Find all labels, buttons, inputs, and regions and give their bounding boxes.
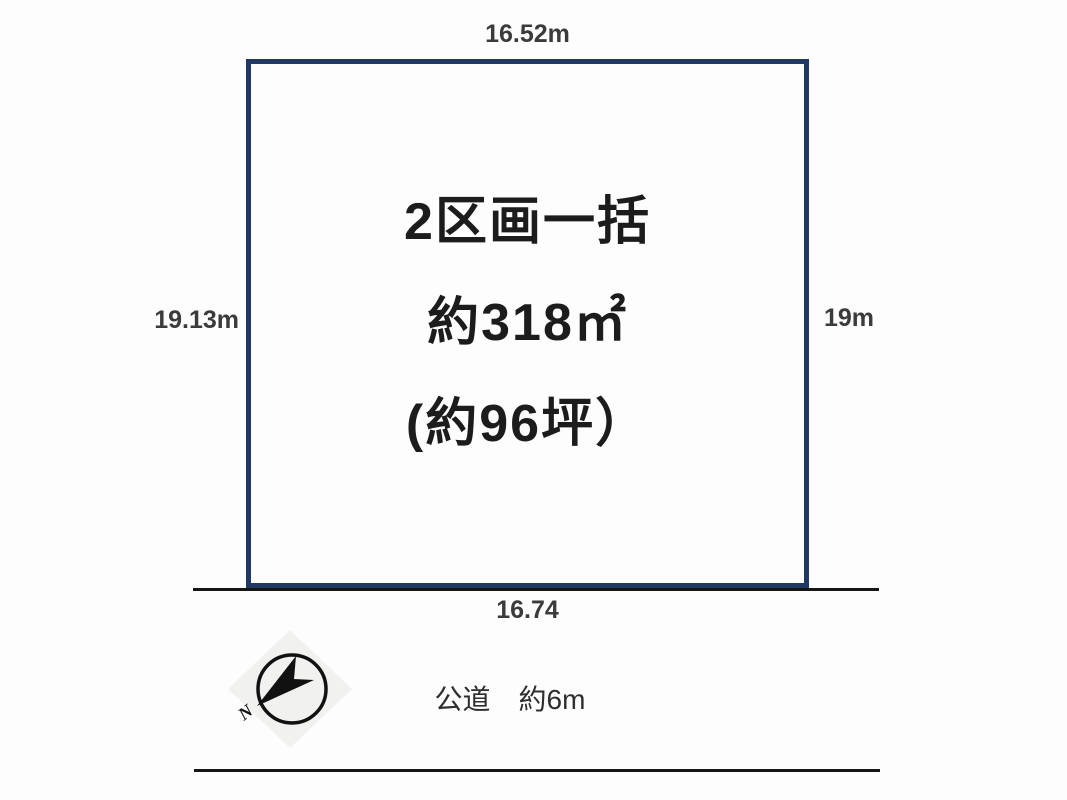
dimension-left-depth: 19.13m [154,306,239,335]
dimension-bottom-width: 16.74 [246,596,809,625]
site-plan-diagram: 16.52m 19.13m 19m 16.74 2区画一括 約318㎡ (約96… [0,0,1067,800]
parcel-area-sqm: 約318㎡ [427,295,628,352]
road-edge-top [193,588,879,591]
dimension-right-depth: 19m [824,304,874,333]
road-edge-bottom [194,769,880,772]
parcel-title: 2区画一括 [404,194,651,251]
parcel-outline: 2区画一括 約318㎡ (約96坪） [246,59,809,588]
dimension-top-width: 16.52m [246,20,809,49]
road-label: 公道 約6m [300,678,720,718]
parcel-area-tsubo: (約96坪） [406,396,649,453]
north-arrow-icon: N [226,627,354,751]
